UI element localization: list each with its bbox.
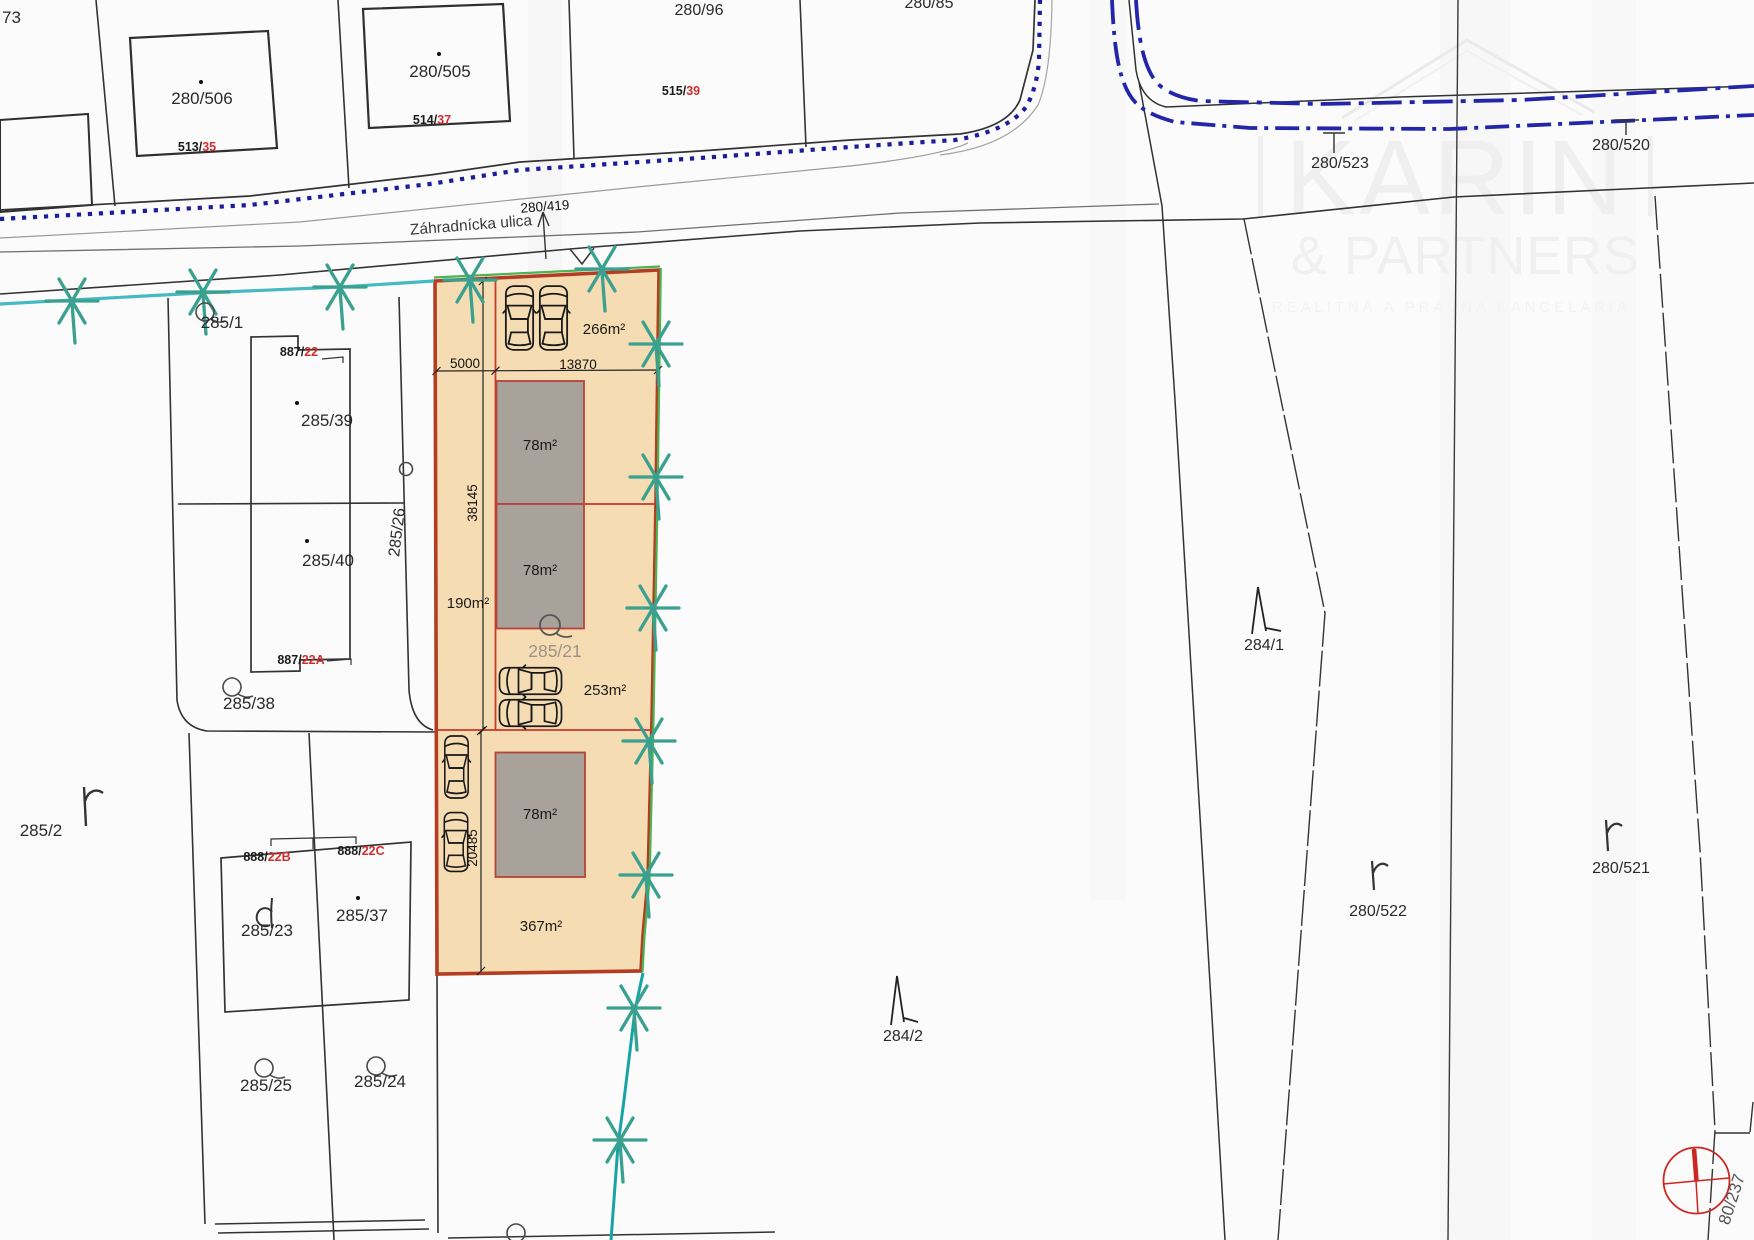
svg-text:REALITNÁ A PRÁVNA KANCELÁRIA: REALITNÁ A PRÁVNA KANCELÁRIA bbox=[1272, 299, 1630, 316]
svg-text:285/2: 285/2 bbox=[20, 821, 63, 840]
svg-text:38145: 38145 bbox=[465, 484, 480, 522]
svg-text:284/1: 284/1 bbox=[1244, 637, 1284, 654]
svg-text:285/24: 285/24 bbox=[354, 1072, 406, 1091]
svg-text:285/25: 285/25 bbox=[240, 1076, 292, 1095]
svg-text:KARIN: KARIN bbox=[1285, 119, 1625, 237]
svg-text:280/505: 280/505 bbox=[409, 62, 470, 81]
svg-text:280/520: 280/520 bbox=[1592, 137, 1650, 154]
svg-text:& PARTNERS: & PARTNERS bbox=[1291, 226, 1639, 286]
svg-text:20485: 20485 bbox=[465, 829, 480, 867]
svg-text:266m²: 266m² bbox=[583, 321, 626, 338]
svg-text:13870: 13870 bbox=[559, 357, 597, 372]
svg-text:280/506: 280/506 bbox=[171, 89, 232, 108]
svg-text:887/22A: 887/22A bbox=[277, 653, 324, 667]
svg-text:280/523: 280/523 bbox=[1311, 155, 1369, 172]
svg-text:285/37: 285/37 bbox=[336, 906, 388, 925]
svg-text:285/23: 285/23 bbox=[241, 921, 293, 940]
svg-text:515/39: 515/39 bbox=[662, 84, 700, 98]
svg-text:514/37: 514/37 bbox=[413, 113, 451, 127]
svg-text:78m²: 78m² bbox=[523, 437, 557, 454]
svg-text:285/40: 285/40 bbox=[302, 551, 354, 570]
svg-text:280/521: 280/521 bbox=[1592, 860, 1650, 877]
svg-text:280/522: 280/522 bbox=[1349, 903, 1407, 920]
svg-text:78m²: 78m² bbox=[523, 806, 557, 823]
svg-text:285/1: 285/1 bbox=[201, 313, 244, 332]
svg-text:190m²: 190m² bbox=[447, 595, 490, 612]
svg-text:513/35: 513/35 bbox=[178, 140, 216, 154]
svg-text:888/22B: 888/22B bbox=[243, 850, 290, 864]
svg-text:285/21: 285/21 bbox=[528, 641, 582, 661]
svg-text:280/85: 280/85 bbox=[905, 0, 954, 12]
svg-text:285/39: 285/39 bbox=[301, 411, 353, 430]
svg-text:5000: 5000 bbox=[450, 356, 480, 371]
svg-text:284/2: 284/2 bbox=[883, 1028, 923, 1045]
svg-text:78m²: 78m² bbox=[523, 562, 557, 579]
svg-text:367m²: 367m² bbox=[520, 918, 563, 935]
svg-text:888/22C: 888/22C bbox=[337, 844, 384, 858]
svg-text:253m²: 253m² bbox=[584, 682, 627, 699]
svg-text:280/96: 280/96 bbox=[675, 2, 724, 19]
svg-text:887/22: 887/22 bbox=[280, 345, 318, 359]
svg-text:73: 73 bbox=[2, 8, 21, 27]
svg-text:285/38: 285/38 bbox=[223, 694, 275, 713]
